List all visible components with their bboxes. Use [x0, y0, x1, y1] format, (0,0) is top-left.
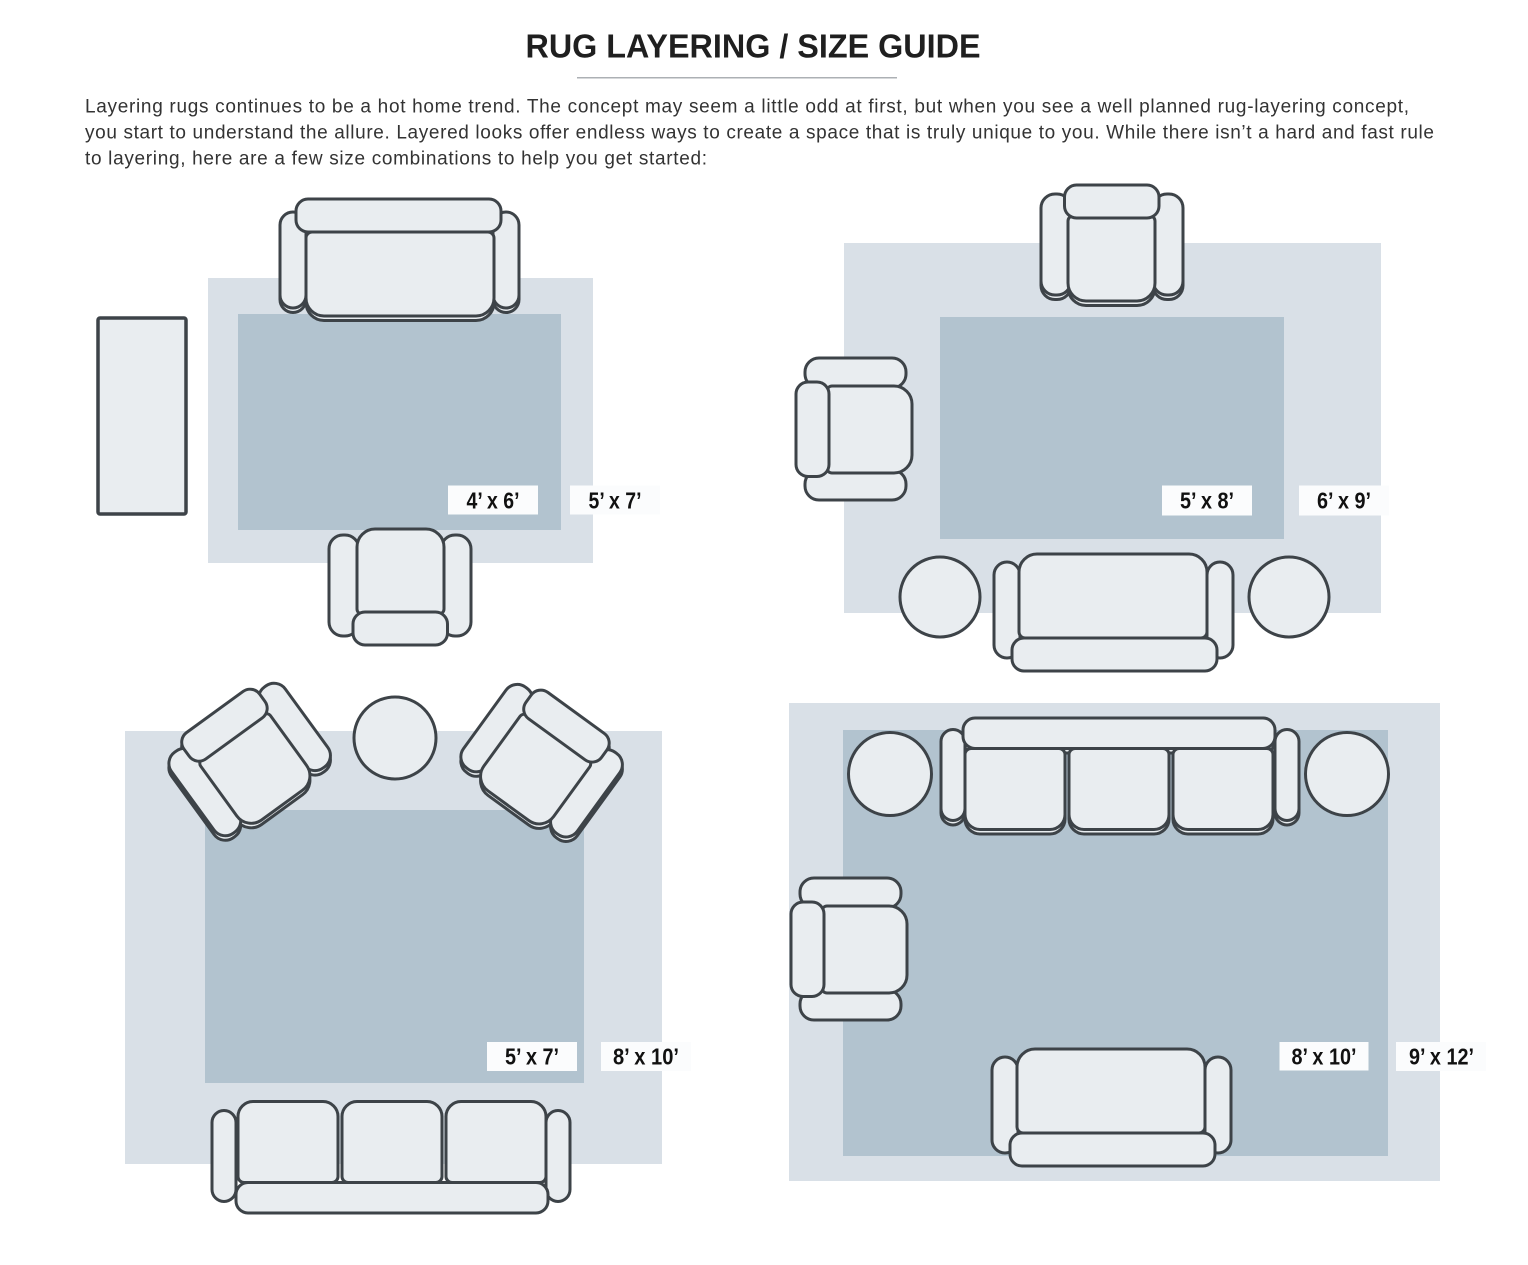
- svg-text:8’ x 10’: 8’ x 10’: [613, 1044, 679, 1070]
- svg-text:to layering, here are a few si: to layering, here are a few size combina…: [85, 149, 707, 170]
- svg-text:9’ x 12’: 9’ x 12’: [1409, 1044, 1474, 1070]
- svg-text:you start to understand the al: you start to understand the allure. Laye…: [85, 123, 1434, 144]
- svg-text:4’ x 6’: 4’ x 6’: [467, 488, 520, 514]
- svg-text:5’ x 8’: 5’ x 8’: [1180, 488, 1234, 514]
- svg-text:8’ x 10’: 8’ x 10’: [1292, 1044, 1357, 1070]
- svg-text:5’ x 7’: 5’ x 7’: [589, 488, 642, 514]
- svg-text:6’ x 9’: 6’ x 9’: [1317, 488, 1371, 514]
- svg-text:Layering rugs continues to be: Layering rugs continues to be a hot home…: [85, 97, 1409, 118]
- svg-text:RUG LAYERING / SIZE GUIDE: RUG LAYERING / SIZE GUIDE: [526, 28, 981, 65]
- svg-text:5’ x 7’: 5’ x 7’: [505, 1044, 559, 1070]
